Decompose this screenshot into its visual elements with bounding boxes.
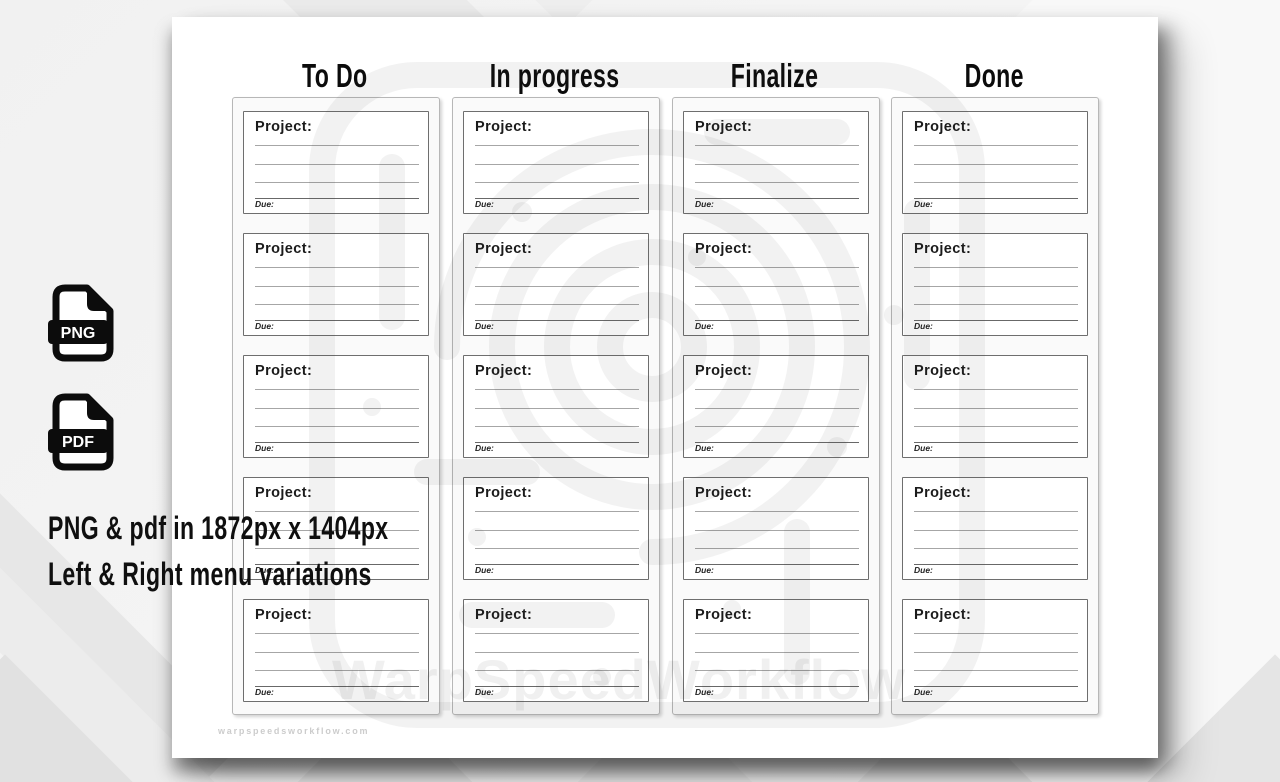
due-label: Due: (695, 443, 714, 453)
ruled-line (695, 164, 859, 165)
website-watermark: warpspeedsworkflow.com (218, 726, 369, 736)
ruled-line (255, 633, 419, 634)
column-to-do: Project:Due:Project:Due:Project:Due:Proj… (232, 97, 440, 715)
project-label: Project: (475, 485, 532, 501)
note-line-1-text: PNG & pdf in 1872px x 1404px (48, 510, 388, 547)
due-line (914, 686, 1078, 687)
project-label: Project: (695, 607, 752, 623)
ruled-line (695, 548, 859, 549)
ruled-line (695, 530, 859, 531)
ruled-line (695, 267, 859, 268)
ruled-line (914, 652, 1078, 653)
project-card: Project:Due: (463, 355, 649, 458)
project-card: Project:Due: (683, 355, 869, 458)
ruled-line (255, 304, 419, 305)
due-line (695, 320, 859, 321)
ruled-line (475, 164, 639, 165)
due-label: Due: (255, 443, 274, 453)
ruled-line (695, 670, 859, 671)
project-label: Project: (914, 363, 971, 379)
due-line (475, 442, 639, 443)
column-header-to-do: To Do (232, 55, 438, 97)
due-line (695, 686, 859, 687)
ruled-line (914, 511, 1078, 512)
due-label: Due: (475, 443, 494, 453)
ruled-line (255, 389, 419, 390)
template-sheet: To DoProject:Due:Project:Due:Project:Due… (172, 17, 1158, 758)
column-title: In progress (490, 55, 620, 97)
project-label: Project: (475, 119, 532, 135)
project-card: Project:Due: (683, 477, 869, 580)
project-label: Project: (695, 363, 752, 379)
ruled-line (475, 426, 639, 427)
file-label: PNG (61, 325, 96, 342)
due-label: Due: (475, 321, 494, 331)
ruled-line (255, 286, 419, 287)
due-label: Due: (695, 199, 714, 209)
ruled-line (695, 633, 859, 634)
ruled-line (695, 304, 859, 305)
project-card: Project:Due: (463, 111, 649, 214)
ruled-line (475, 670, 639, 671)
note-line-2: Left & Right menu variations (48, 556, 498, 593)
ruled-line (695, 145, 859, 146)
project-card: Project:Due: (902, 233, 1088, 336)
project-label: Project: (695, 119, 752, 135)
project-label: Project: (914, 119, 971, 135)
project-card: Project:Due: (243, 599, 429, 702)
project-label: Project: (475, 607, 532, 623)
ruled-line (475, 267, 639, 268)
ruled-line (695, 182, 859, 183)
due-label: Due: (914, 321, 933, 331)
due-line (255, 442, 419, 443)
ruled-line (475, 182, 639, 183)
ruled-line (695, 408, 859, 409)
due-label: Due: (255, 687, 274, 697)
due-line (475, 564, 639, 565)
project-label: Project: (914, 241, 971, 257)
project-card: Project:Due: (243, 111, 429, 214)
project-card: Project:Due: (463, 599, 649, 702)
ruled-line (914, 389, 1078, 390)
due-label: Due: (914, 565, 933, 575)
due-label: Due: (695, 687, 714, 697)
ruled-line (695, 286, 859, 287)
note-line-1: PNG & pdf in 1872px x 1404px (48, 510, 521, 547)
due-line (695, 198, 859, 199)
ruled-line (914, 633, 1078, 634)
ruled-line (914, 304, 1078, 305)
column-header-finalize: Finalize (672, 55, 878, 97)
due-line (255, 686, 419, 687)
due-line (475, 198, 639, 199)
due-line (475, 320, 639, 321)
ruled-line (255, 267, 419, 268)
ruled-line (914, 670, 1078, 671)
file-label: PDF (62, 434, 94, 451)
project-card: Project:Due: (902, 477, 1088, 580)
project-card: Project:Due: (902, 599, 1088, 702)
ruled-line (695, 511, 859, 512)
due-label: Due: (255, 321, 274, 331)
ruled-line (255, 652, 419, 653)
ruled-line (914, 267, 1078, 268)
project-card: Project:Due: (683, 233, 869, 336)
due-label: Due: (695, 321, 714, 331)
ruled-line (695, 652, 859, 653)
ruled-line (255, 182, 419, 183)
column-title: Done (964, 55, 1023, 97)
project-label: Project: (255, 119, 312, 135)
ruled-line (475, 548, 639, 549)
ruled-line (475, 389, 639, 390)
due-line (695, 564, 859, 565)
project-card: Project:Due: (683, 599, 869, 702)
ruled-line (914, 548, 1078, 549)
column-header-in-progress: In progress (452, 55, 658, 97)
due-label: Due: (475, 687, 494, 697)
ruled-line (255, 145, 419, 146)
column-in-progress: Project:Due:Project:Due:Project:Due:Proj… (452, 97, 660, 715)
project-label: Project: (475, 363, 532, 379)
due-line (475, 686, 639, 687)
due-line (914, 198, 1078, 199)
due-line (914, 320, 1078, 321)
ruled-line (914, 426, 1078, 427)
project-label: Project: (914, 485, 971, 501)
ruled-line (475, 286, 639, 287)
pdf-file-icon: PDF (47, 392, 117, 472)
product-preview: To DoProject:Due:Project:Due:Project:Due… (0, 0, 1280, 782)
png-file-icon: PNG (47, 283, 117, 363)
project-card: Project:Due: (463, 233, 649, 336)
ruled-line (914, 182, 1078, 183)
background-pattern (0, 654, 168, 782)
project-card: Project:Due: (902, 355, 1088, 458)
ruled-line (914, 530, 1078, 531)
ruled-line (255, 426, 419, 427)
due-label: Due: (914, 199, 933, 209)
ruled-line (695, 426, 859, 427)
due-label: Due: (914, 443, 933, 453)
project-label: Project: (255, 607, 312, 623)
ruled-line (914, 408, 1078, 409)
project-label: Project: (255, 485, 312, 501)
due-label: Due: (695, 565, 714, 575)
ruled-line (475, 633, 639, 634)
ruled-line (475, 408, 639, 409)
ruled-line (914, 286, 1078, 287)
due-line (255, 320, 419, 321)
project-card: Project:Due: (243, 355, 429, 458)
ruled-line (255, 670, 419, 671)
due-line (914, 564, 1078, 565)
project-label: Project: (695, 485, 752, 501)
project-label: Project: (695, 241, 752, 257)
due-line (695, 442, 859, 443)
ruled-line (914, 145, 1078, 146)
column-title: Finalize (731, 55, 819, 97)
ruled-line (695, 389, 859, 390)
column-finalize: Project:Due:Project:Due:Project:Due:Proj… (672, 97, 880, 715)
ruled-line (475, 652, 639, 653)
due-label: Due: (914, 687, 933, 697)
due-line (255, 198, 419, 199)
column-title: To Do (302, 55, 367, 97)
project-label: Project: (914, 607, 971, 623)
ruled-line (255, 408, 419, 409)
ruled-line (255, 548, 419, 549)
column-header-done: Done (891, 55, 1097, 97)
project-card: Project:Due: (683, 111, 869, 214)
due-label: Due: (255, 199, 274, 209)
project-label: Project: (255, 241, 312, 257)
ruled-line (475, 304, 639, 305)
project-label: Project: (475, 241, 532, 257)
project-card: Project:Due: (902, 111, 1088, 214)
ruled-line (255, 164, 419, 165)
project-label: Project: (255, 363, 312, 379)
due-line (914, 442, 1078, 443)
column-done: Project:Due:Project:Due:Project:Due:Proj… (891, 97, 1099, 715)
ruled-line (914, 164, 1078, 165)
project-card: Project:Due: (243, 233, 429, 336)
note-line-2-text: Left & Right menu variations (48, 556, 372, 593)
ruled-line (475, 145, 639, 146)
due-label: Due: (475, 199, 494, 209)
